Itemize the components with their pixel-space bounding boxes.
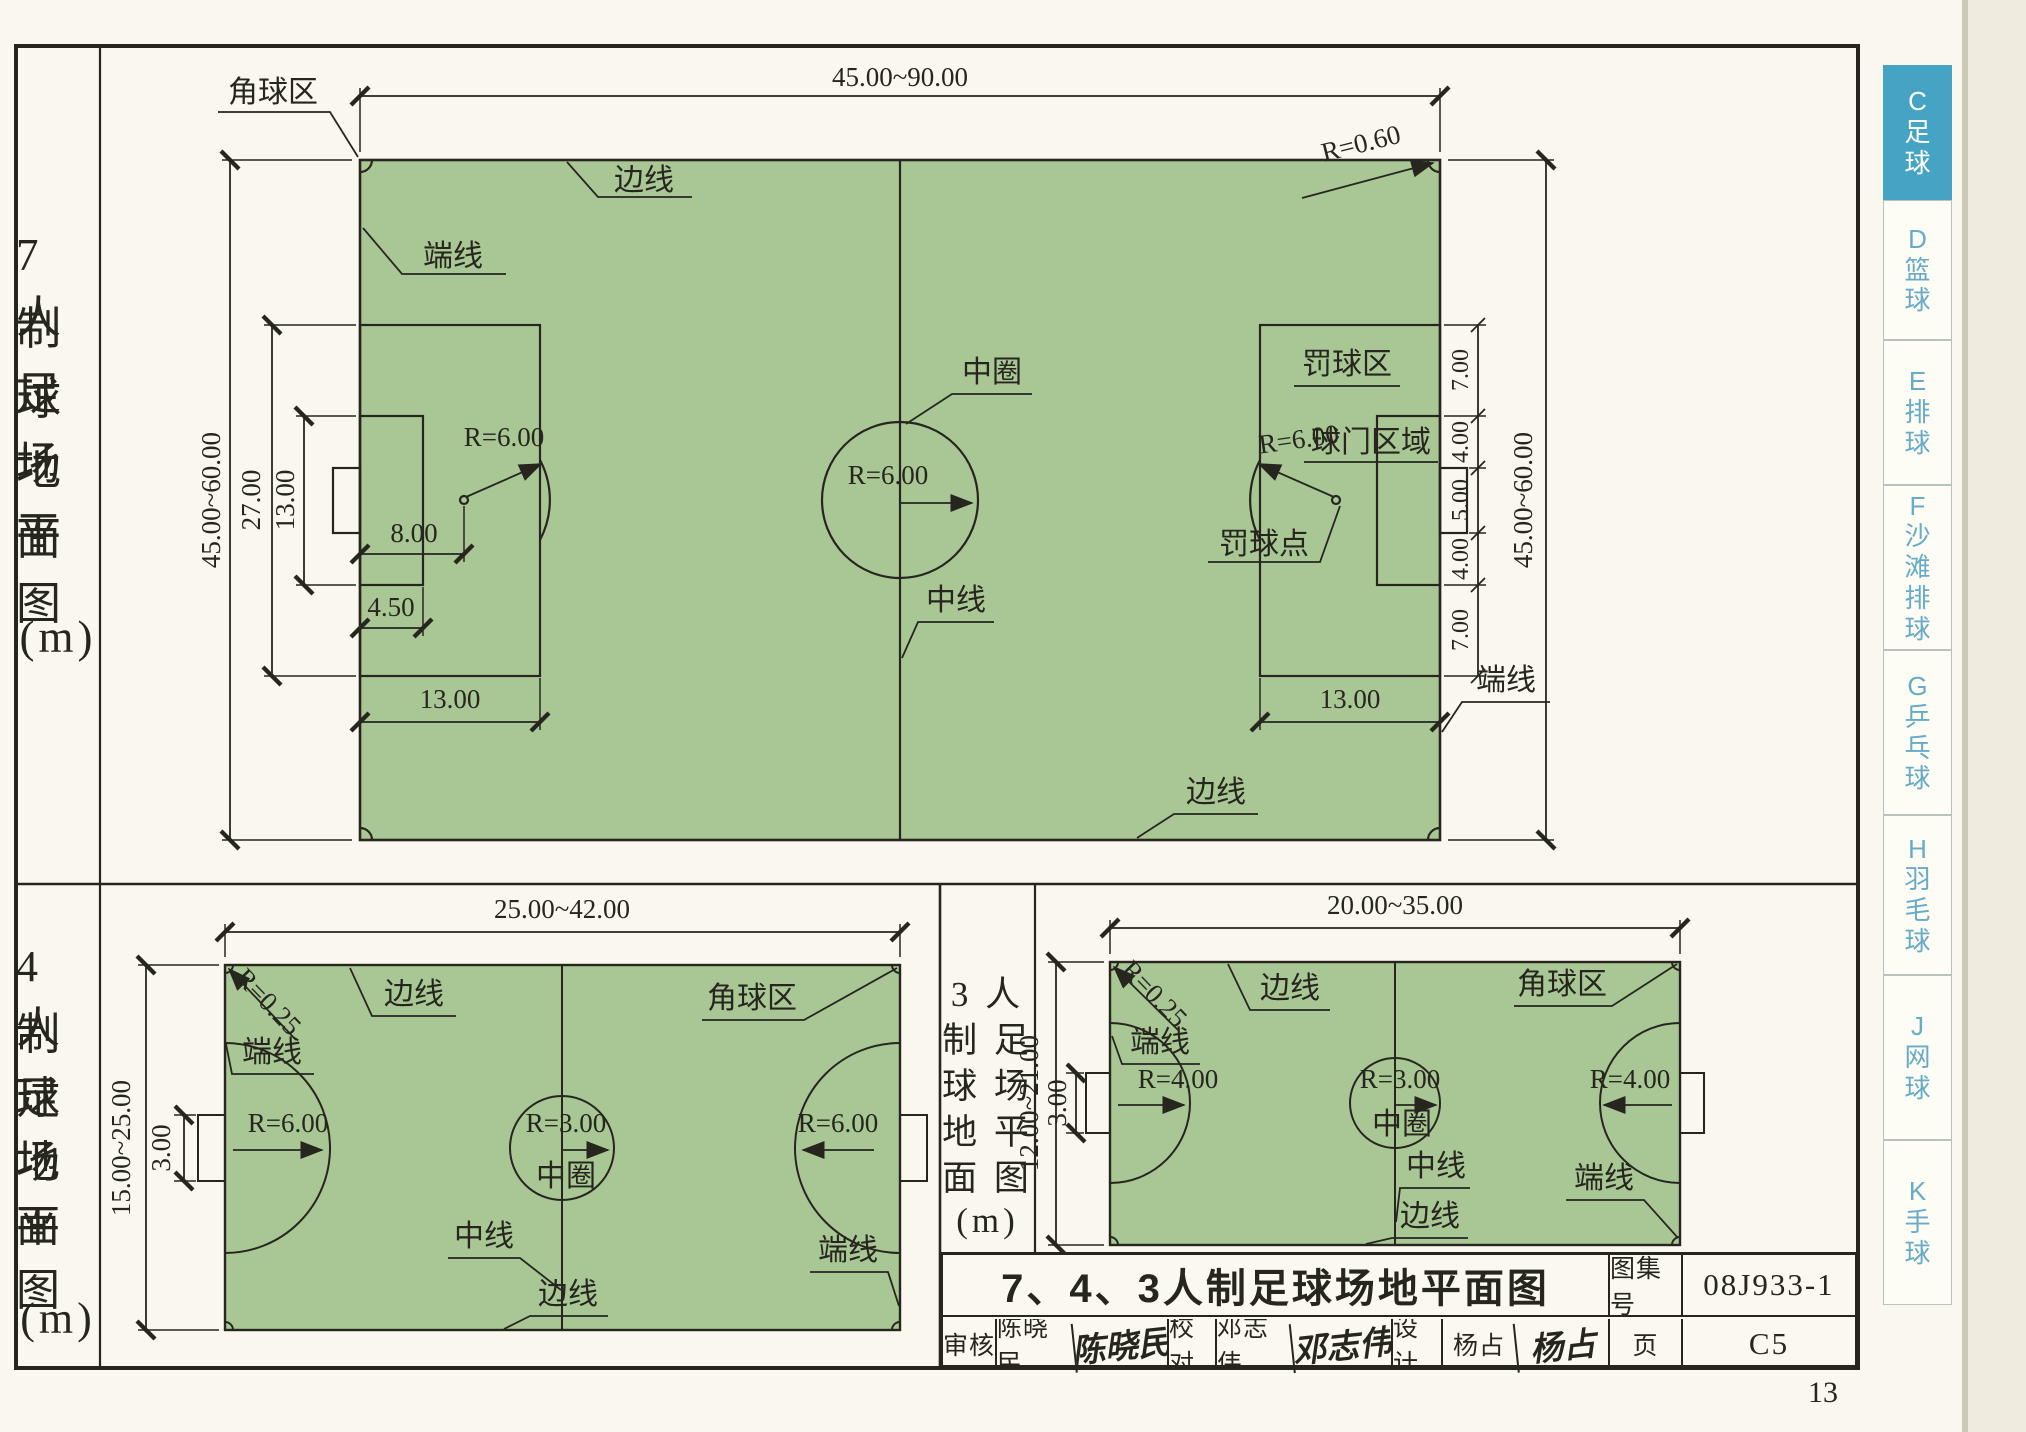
title-block: 7、4、3人制足球场地平面图 图集号 08J933-1 审核 陈晓民 陈晓民 校… xyxy=(940,1252,1858,1368)
f4-dim-top: 25.00~42.00 xyxy=(494,894,630,924)
checker-name: 邓志伟 xyxy=(1215,1319,1291,1368)
f7-penalty-area-label: 罚球区 xyxy=(1302,348,1392,381)
f3-section-label: 3 人 制 足 球 场 地 平 面 图 (m) xyxy=(940,968,1035,1244)
f4-sideline-bottom-label: 边线 xyxy=(538,1278,598,1311)
page-number: 13 xyxy=(1788,1376,1858,1410)
f3-endline-left-label: 端线 xyxy=(1130,1026,1190,1059)
f3-corner-label: 角球区 xyxy=(1517,968,1607,1001)
f3-dim-top: 20.00~35.00 xyxy=(1327,890,1463,920)
tab-name: 沙滩排球 xyxy=(1903,521,1933,644)
f7-dim-13-bottom-right: 13.00 xyxy=(1320,684,1381,714)
f7-corner-label: 角球区 xyxy=(228,76,318,109)
tab-name: 手球 xyxy=(1903,1207,1933,1268)
atlas-no-label: 图集号 xyxy=(1608,1255,1681,1317)
tab-letter: J xyxy=(1911,1011,1924,1042)
f4-endline-right-label: 端线 xyxy=(818,1234,878,1267)
f3-label-row: 地 平 xyxy=(942,1106,1033,1152)
f7-penalty-radius-left: R=6.00 xyxy=(464,422,545,452)
f3-label-row: 制 足 xyxy=(942,1014,1033,1060)
tab-name: 羽毛球 xyxy=(1903,864,1933,956)
tab-letter: C xyxy=(1908,86,1927,117)
f4-sideline-top-label: 边线 xyxy=(384,978,444,1011)
designer-signature: 杨占 xyxy=(1513,1314,1611,1372)
f4-label-row: 面 图 xyxy=(16,1222,100,1286)
f4-field-drawing: 25.00~42.00 R=0.25 边线 端线 15.00~25.00 3.0… xyxy=(106,894,927,1330)
tab-name: 足球 xyxy=(1903,117,1933,178)
tab-letter: F xyxy=(1910,491,1926,522)
sidebar-tab-football[interactable]: C 足球 xyxy=(1883,65,1952,200)
page-value: C5 xyxy=(1681,1319,1855,1368)
f4-left-radius: R=6.00 xyxy=(248,1108,329,1138)
f7-center-circle-label: 中圈 xyxy=(962,356,1022,389)
tab-name: 排球 xyxy=(1903,397,1933,458)
f3-label-row: 球 场 xyxy=(942,1060,1033,1106)
f7-chain-4a: 4.00 xyxy=(1448,421,1474,463)
f4-right-radius: R=6.00 xyxy=(798,1108,879,1138)
page-margin xyxy=(1968,0,2026,1432)
f7-sideline-top-label: 边线 xyxy=(614,164,674,197)
f7-dim-left-outer: 45.00~60.00 xyxy=(196,432,226,568)
sidebar-tab-beach-volleyball[interactable]: F 沙滩排球 xyxy=(1883,485,1952,650)
f3-midline-label: 中线 xyxy=(1406,1150,1466,1183)
f4-midline-label: 中线 xyxy=(454,1220,514,1253)
f3-sideline-top-label: 边线 xyxy=(1260,972,1320,1005)
f7-center-radius: R=6.00 xyxy=(848,460,929,490)
f7-label-row: (m) xyxy=(20,602,97,672)
f7-endline-left-label: 端线 xyxy=(423,240,483,273)
f4-dim-left-outer: 15.00~25.00 xyxy=(106,1080,136,1216)
sidebar-tab-basketball[interactable]: D 篮球 xyxy=(1883,200,1952,340)
sidebar-tab-badminton[interactable]: H 羽毛球 xyxy=(1883,815,1952,975)
tab-name: 网球 xyxy=(1903,1042,1933,1103)
tab-name: 篮球 xyxy=(1903,255,1933,316)
reviewer-name: 陈晓民 xyxy=(995,1319,1073,1368)
f3-dim-goal: 3.00 xyxy=(1042,1079,1072,1126)
tab-letter: D xyxy=(1908,224,1927,255)
f4-center-circle-label: 中圈 xyxy=(536,1160,596,1193)
sidebar-tab-handball[interactable]: K 手球 xyxy=(1883,1140,1952,1305)
f7-dim-13: 13.00 xyxy=(270,470,300,531)
f7-chain-4b: 4.00 xyxy=(1448,538,1474,580)
tab-letter: K xyxy=(1909,1176,1926,1207)
tab-letter: E xyxy=(1909,366,1926,397)
f3-label-row: (m) xyxy=(956,1198,1019,1244)
f7-chain-5: 5.00 xyxy=(1448,479,1474,521)
tab-name: 乒乓球 xyxy=(1903,702,1933,794)
f4-section-label: 4 人 制 足 球 场 地 平 面 图 (m) xyxy=(16,966,100,1350)
page-label: 页 xyxy=(1608,1319,1681,1368)
f7-dim-right-outer: 45.00~60.00 xyxy=(1508,432,1538,568)
f7-field-drawing: 45.00~90.00 角球区 R=0.60 边线 端线 45.00~60.00… xyxy=(196,62,1554,840)
f7-dim-top: 45.00~90.00 xyxy=(832,62,968,92)
f7-dim-13-bottom-left: 13.00 xyxy=(420,684,481,714)
f7-endline-right-label: 端线 xyxy=(1476,664,1536,697)
atlas-page: 45.00~90.00 角球区 R=0.60 边线 端线 45.00~60.00… xyxy=(0,0,2026,1432)
f7-dim-27: 27.00 xyxy=(236,470,266,531)
sidebar-tab-tennis[interactable]: J 网球 xyxy=(1883,975,1952,1140)
f3-field-drawing: 20.00~35.00 R=0.25 边线 端线 12.00~21.00 3.0… xyxy=(1014,890,1704,1245)
f7-sideline-bottom-label: 边线 xyxy=(1186,776,1246,809)
check-label: 校对 xyxy=(1167,1319,1215,1368)
f7-label-row: 面 图 xyxy=(16,532,100,602)
f7-section-label: 7 人 制 足 球 场 地 平 面 图 (m) xyxy=(16,252,100,672)
f7-penalty-spot-label: 罚球点 xyxy=(1219,528,1309,561)
f7-chain-7b: 7.00 xyxy=(1448,609,1474,651)
atlas-no-value: 08J933-1 xyxy=(1681,1255,1855,1317)
f4-corner-label: 角球区 xyxy=(707,982,797,1015)
sheet-title: 7、4、3人制足球场地平面图 xyxy=(943,1255,1608,1317)
f7-dim-45: 4.50 xyxy=(367,592,414,622)
design-label: 设计 xyxy=(1391,1319,1441,1368)
f3-right-radius: R=4.00 xyxy=(1590,1064,1671,1094)
f3-endline-right-label: 端线 xyxy=(1574,1162,1634,1195)
tab-letter: G xyxy=(1907,671,1927,702)
f4-endline-left-label: 端线 xyxy=(242,1036,302,1069)
tab-letter: H xyxy=(1908,834,1927,865)
f7-dim-8: 8.00 xyxy=(390,518,437,548)
f7-chain-7a: 7.00 xyxy=(1448,349,1474,391)
f3-center-radius: R=3.00 xyxy=(1360,1064,1441,1094)
f3-center-circle-label: 中圈 xyxy=(1372,1108,1432,1141)
f3-left-radius: R=4.00 xyxy=(1138,1064,1219,1094)
checker-signature: 邓志伟 xyxy=(1289,1314,1394,1373)
f4-label-row: (m) xyxy=(20,1286,96,1350)
reviewer-signature: 陈晓民 xyxy=(1071,1314,1170,1373)
f3-sideline-bottom-label: 边线 xyxy=(1400,1200,1460,1233)
f4-center-radius: R=3.00 xyxy=(526,1108,607,1138)
f7-midline-label: 中线 xyxy=(926,584,986,617)
f3-label-row: 3 人 xyxy=(951,968,1024,1014)
f3-label-row: 面 图 xyxy=(942,1152,1033,1198)
sidebar-tab-volleyball[interactable]: E 排球 xyxy=(1883,340,1952,485)
review-label: 审核 xyxy=(943,1319,995,1368)
designer-name: 杨占 xyxy=(1441,1319,1515,1368)
f4-dim-goal: 3.00 xyxy=(146,1124,176,1171)
sidebar-tab-table-tennis[interactable]: G 乒乓球 xyxy=(1883,650,1952,815)
